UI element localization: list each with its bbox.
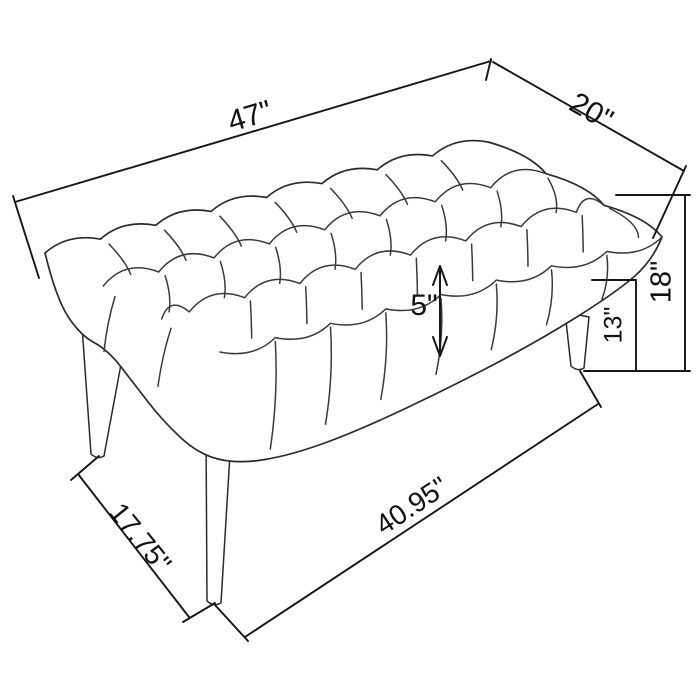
dim-label-overall-height: 18": [648, 261, 677, 304]
dimension-diagram: 47" 20" 5" 18" 13" 17.75" 40.95": [0, 0, 700, 700]
bench-cushion: [45, 141, 662, 462]
dim-label-seat-thickness: 5": [410, 291, 437, 321]
dim-label-leg-height: 13": [602, 307, 627, 344]
